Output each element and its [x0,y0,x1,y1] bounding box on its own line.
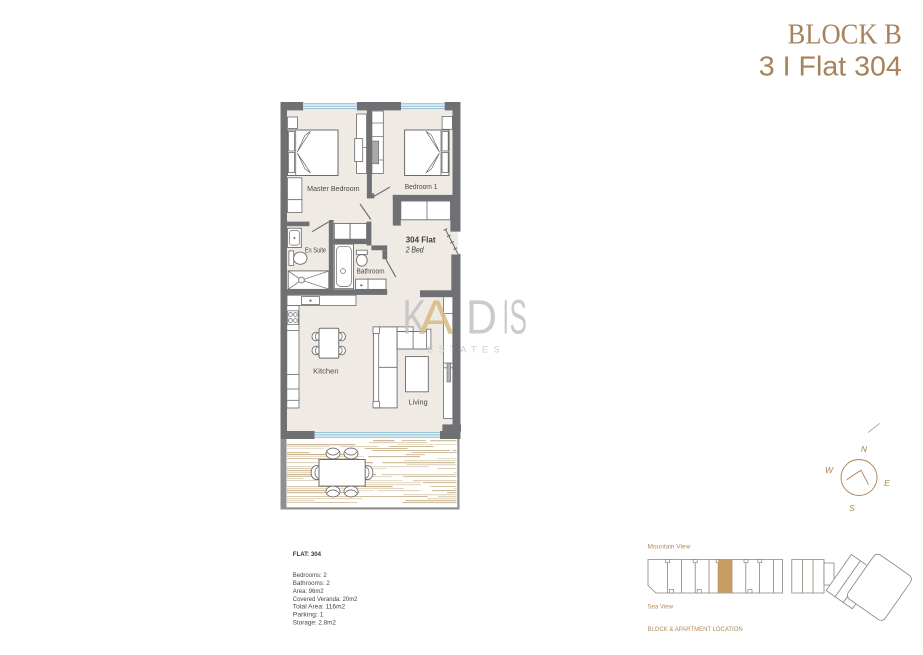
svg-text:Total Area: 116m2: Total Area: 116m2 [293,604,346,611]
svg-text:Sea View: Sea View [648,603,674,610]
svg-text:Mountain View: Mountain View [648,543,691,550]
svg-text:S: S [510,291,528,344]
svg-text:BLOCK B: BLOCK B [788,20,902,51]
svg-text:ESTATES: ESTATES [427,344,505,354]
svg-text:En Suite: En Suite [305,247,326,254]
svg-text:Storage: 2.8m2: Storage: 2.8m2 [293,619,336,626]
svg-text:N: N [861,444,868,454]
svg-text:Bathrooms: 2: Bathrooms: 2 [293,580,330,587]
svg-text:Master Bedroom: Master Bedroom [307,186,360,193]
svg-text:E: E [884,478,890,488]
svg-text:3 I Flat 304: 3 I Flat 304 [759,50,902,81]
svg-text:Bedrooms: 2: Bedrooms: 2 [293,572,327,579]
svg-text:S: S [849,503,855,513]
svg-text:Area: 96m2: Area: 96m2 [293,588,324,595]
svg-text:D: D [466,291,497,344]
svg-text:Bedroom 1: Bedroom 1 [405,184,438,191]
svg-text:I: I [503,291,510,344]
svg-text:A: A [419,291,454,344]
svg-text:Parking: 1: Parking: 1 [293,612,324,619]
svg-text:304 Flat: 304 Flat [406,235,436,245]
svg-text:Kitchen: Kitchen [313,369,339,376]
svg-text:FLAT: 304: FLAT: 304 [293,551,321,558]
svg-text:W: W [825,465,834,475]
svg-text:Bathroom: Bathroom [356,269,384,276]
svg-text:BLOCK & APARTMENT LOCATION: BLOCK & APARTMENT LOCATION [648,626,743,633]
svg-text:Covered Veranda: 20m2: Covered Veranda: 20m2 [293,596,358,603]
svg-text:Living: Living [409,400,428,407]
svg-text:2 Bed: 2 Bed [405,245,424,254]
